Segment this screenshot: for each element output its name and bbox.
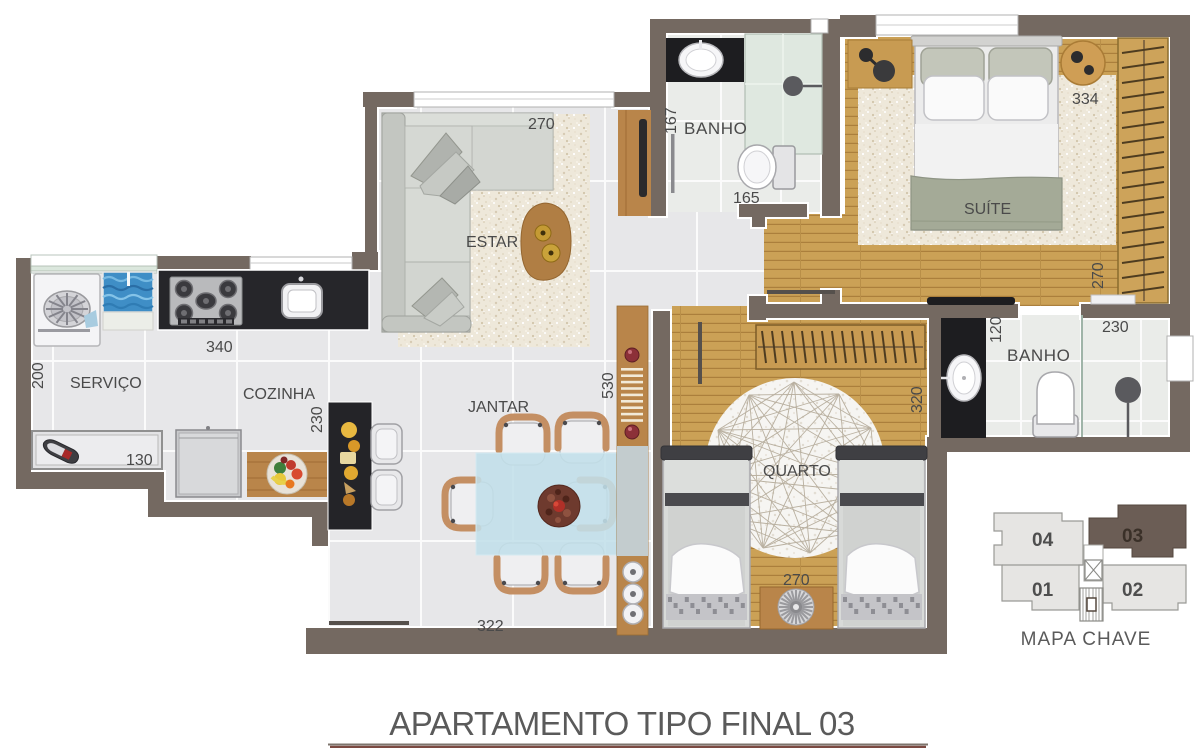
svg-text:04: 04	[1032, 530, 1054, 551]
svg-text:BANHO: BANHO	[684, 119, 747, 138]
svg-text:SUÍTE: SUÍTE	[964, 199, 1011, 218]
svg-text:322: 322	[477, 618, 504, 635]
svg-text:130: 130	[126, 452, 153, 469]
svg-text:340: 340	[206, 339, 233, 356]
svg-text:MAPA CHAVE: MAPA CHAVE	[1021, 629, 1152, 650]
svg-text:03: 03	[1122, 526, 1143, 547]
svg-text:SERVIÇO: SERVIÇO	[70, 375, 142, 392]
svg-text:230: 230	[1102, 319, 1129, 336]
svg-text:165: 165	[733, 190, 760, 207]
svg-text:QUARTO: QUARTO	[763, 463, 831, 480]
svg-text:334: 334	[1072, 91, 1099, 108]
svg-text:530: 530	[600, 372, 617, 399]
svg-text:200: 200	[30, 362, 47, 389]
svg-text:APARTAMENTO TIPO FINAL 03: APARTAMENTO TIPO FINAL 03	[389, 705, 855, 742]
svg-text:JANTAR: JANTAR	[468, 399, 529, 416]
svg-text:270: 270	[528, 116, 555, 133]
svg-text:320: 320	[909, 386, 926, 413]
svg-text:02: 02	[1122, 580, 1143, 601]
svg-text:167: 167	[663, 107, 680, 134]
svg-text:270: 270	[1090, 262, 1107, 289]
svg-text:270: 270	[783, 572, 810, 589]
svg-text:120: 120	[988, 316, 1005, 343]
svg-text:ESTAR: ESTAR	[466, 234, 518, 251]
svg-text:BANHO: BANHO	[1007, 346, 1070, 365]
svg-text:COZINHA: COZINHA	[243, 386, 315, 403]
svg-text:230: 230	[309, 406, 326, 433]
svg-text:01: 01	[1032, 580, 1054, 601]
